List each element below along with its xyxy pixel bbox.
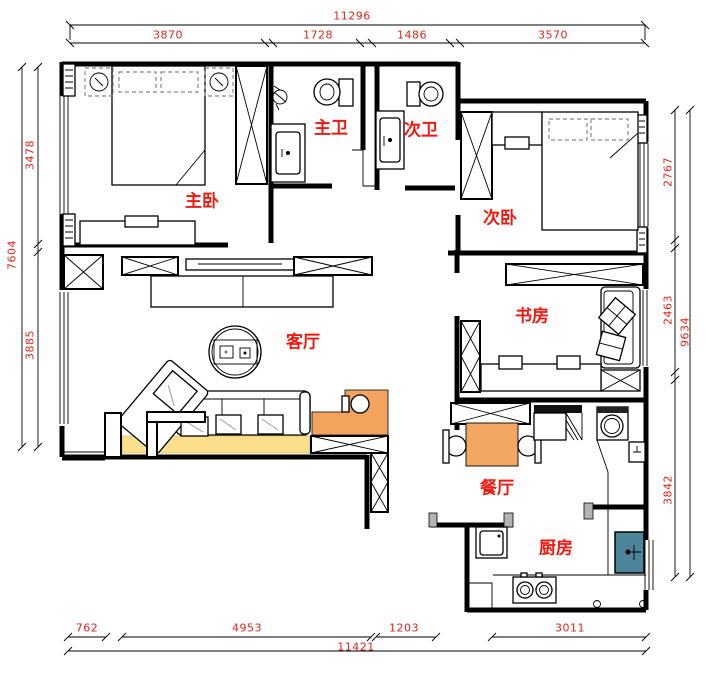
dim-bottom-total: 11421 <box>337 641 375 654</box>
dim-right-1: 2767 <box>662 157 675 187</box>
dim-top-2: 1728 <box>303 29 333 42</box>
room-label-living-room: 客厅 <box>286 328 320 353</box>
study-furniture <box>461 264 643 392</box>
wall-cap <box>429 513 437 527</box>
wall-cap <box>504 513 513 527</box>
room-label-kitchen: 厨房 <box>539 534 573 559</box>
dining-furniture <box>443 403 645 466</box>
room-label-dining-room: 餐厅 <box>480 474 514 499</box>
room-label-second-bath: 次卫 <box>404 116 438 141</box>
master-bedroom-furniture <box>80 66 267 245</box>
dim-right-total: 9634 <box>679 317 692 347</box>
dim-left-2: 3885 <box>24 330 37 360</box>
dim-right-2: 2463 <box>662 295 675 325</box>
dim-bottom-4: 3011 <box>555 622 585 635</box>
room-label-second-bedroom: 次卧 <box>483 204 517 229</box>
dining-table <box>466 423 518 466</box>
dim-top-4: 3570 <box>538 29 568 42</box>
room-label-master-bedroom: 主卧 <box>185 187 219 212</box>
room-label-master-bath: 主卫 <box>314 114 348 139</box>
dim-bottom-3: 1203 <box>389 622 419 635</box>
floor-plan-drawing <box>0 0 706 676</box>
dim-top-total: 11296 <box>333 10 371 23</box>
wall-cap <box>584 503 593 519</box>
room-label-study: 书房 <box>515 302 549 327</box>
dim-bottom-2: 4953 <box>232 622 262 635</box>
dim-right-3: 3842 <box>662 475 675 505</box>
dim-left-1: 3478 <box>24 140 37 170</box>
dim-left-total: 7604 <box>6 240 19 270</box>
dim-bottom-1: 762 <box>76 622 99 635</box>
floor-plan: 11296 3870 1728 1486 3570 7604 3478 3885… <box>0 0 706 676</box>
dim-top-3: 1486 <box>397 29 427 42</box>
bar-counter <box>312 390 388 435</box>
dim-top-1: 3870 <box>153 29 183 42</box>
living-room-furniture <box>62 255 388 512</box>
